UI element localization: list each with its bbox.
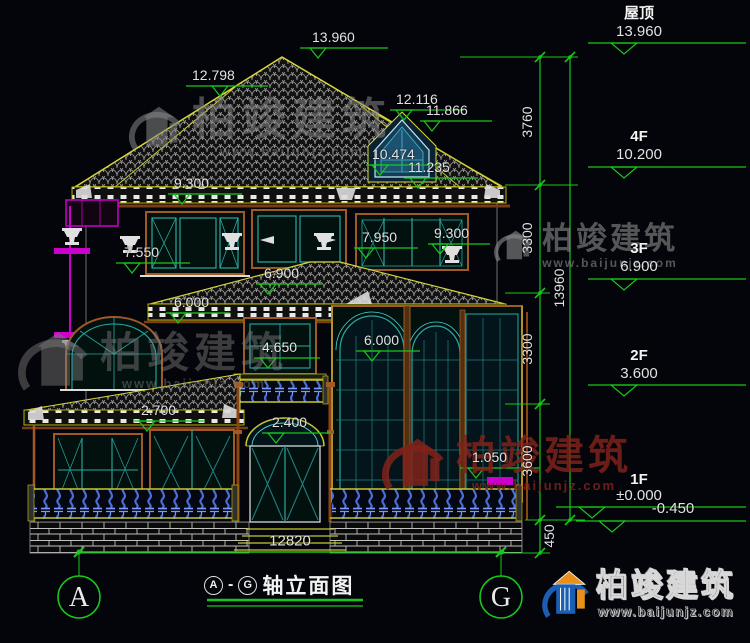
elevation-drawing-canvas: 柏竣建筑 www.baijunjz.com 柏竣建筑 www.baijunjz.… bbox=[0, 0, 750, 643]
tall-arched-glazing bbox=[332, 306, 527, 520]
floor-level-label: 4F bbox=[596, 129, 682, 144]
bottom-dimension: 12820 bbox=[269, 534, 311, 549]
title-axis-from: A bbox=[204, 576, 223, 595]
elevation-mark: 7.550 bbox=[124, 245, 159, 259]
title-axis-to: G bbox=[238, 576, 257, 595]
floor-level-value: 13.960 bbox=[596, 24, 682, 39]
floor-level-label: 屋顶 bbox=[596, 6, 682, 21]
brand-logo: 柏竣建筑 www.baijunjz.com bbox=[538, 560, 736, 626]
elevation-mark: 2.400 bbox=[272, 415, 307, 429]
floor-level-value: 3.600 bbox=[596, 366, 682, 381]
axis-letter-a: A bbox=[69, 584, 89, 612]
floor-level-value: 6.900 bbox=[596, 259, 682, 274]
house-elevation-svg bbox=[0, 0, 750, 643]
elevation-mark: 7.950 bbox=[362, 230, 397, 244]
vertical-dim-total: 13960 bbox=[552, 269, 566, 308]
brand-name: 柏竣建筑 bbox=[596, 569, 736, 601]
floor-level-label: 2F bbox=[596, 348, 682, 363]
elevation-mark: 1.050 bbox=[472, 450, 507, 464]
vertical-dim: 3300 bbox=[520, 222, 534, 253]
drawing-title: A - G 轴立面图 bbox=[204, 570, 354, 600]
elevation-mark: 9.300 bbox=[174, 176, 209, 190]
title-separator: - bbox=[228, 576, 233, 594]
floor-level-label: 1F bbox=[596, 472, 682, 487]
elevation-mark: 4.650 bbox=[262, 340, 297, 354]
axis-letter-g: G bbox=[491, 584, 511, 612]
eave-band-4f bbox=[68, 184, 510, 206]
elevation-mark: 11.866 bbox=[426, 103, 468, 117]
elevation-mark: 2.700 bbox=[141, 403, 176, 417]
elevation-mark: 13.960 bbox=[312, 30, 355, 44]
elevation-mark: 6.900 bbox=[264, 266, 299, 280]
floor-level-value: 10.200 bbox=[596, 147, 682, 162]
brand-logo-icon bbox=[538, 560, 590, 626]
vertical-dim: 450 bbox=[542, 524, 556, 547]
floor-level-label: 3F bbox=[596, 241, 682, 256]
elevation-mark: 12.798 bbox=[192, 68, 235, 82]
elevation-mark: 9.300 bbox=[434, 226, 469, 240]
vertical-dim: 3600 bbox=[520, 445, 534, 476]
elevation-mark: 6.000 bbox=[174, 295, 209, 309]
title-underline bbox=[207, 600, 363, 606]
elevation-mark: 6.000 bbox=[364, 333, 399, 347]
floor-level-value: -0.450 bbox=[630, 501, 716, 516]
title-text: 轴立面图 bbox=[262, 570, 354, 600]
brand-url: www.baijunjz.com bbox=[598, 605, 734, 618]
vertical-dim: 3760 bbox=[520, 106, 534, 137]
elevation-mark: 11.235 bbox=[408, 160, 450, 174]
vertical-dim: 3300 bbox=[520, 333, 534, 364]
right-level-lines bbox=[556, 43, 746, 532]
